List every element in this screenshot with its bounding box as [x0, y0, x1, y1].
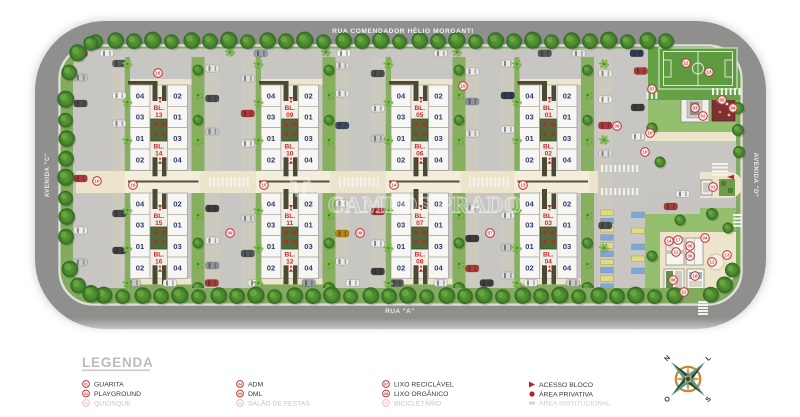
svg-text:06: 06	[416, 151, 424, 158]
svg-text:01: 01	[173, 221, 182, 230]
svg-text:03: 03	[173, 242, 181, 251]
svg-text:04: 04	[267, 199, 276, 208]
svg-text:02: 02	[304, 91, 312, 100]
svg-text:10: 10	[643, 150, 648, 155]
svg-text:04: 04	[238, 382, 242, 386]
svg-text:QUIOSQUE: QUIOSQUE	[94, 400, 131, 407]
svg-text:02: 02	[525, 155, 533, 164]
svg-text:01: 01	[397, 134, 406, 143]
svg-text:05: 05	[720, 98, 725, 103]
svg-text:01: 01	[84, 382, 88, 386]
svg-text:03: 03	[136, 221, 144, 230]
svg-text:03: 03	[136, 113, 144, 122]
svg-text:09: 09	[228, 231, 233, 236]
svg-text:03: 03	[304, 242, 312, 251]
svg-text:SALÃO DE FESTAS: SALÃO DE FESTAS	[248, 398, 310, 407]
svg-text:BL.: BL.	[543, 144, 554, 151]
svg-text:04: 04	[545, 259, 553, 266]
svg-text:03: 03	[84, 401, 88, 405]
svg-text:DML: DML	[248, 391, 263, 398]
svg-text:06: 06	[688, 244, 693, 249]
svg-text:ÁREA PRIVATIVA: ÁREA PRIVATIVA	[539, 390, 593, 399]
svg-text:07: 07	[650, 87, 655, 92]
svg-text:03: 03	[563, 134, 571, 143]
svg-text:15: 15	[155, 220, 163, 227]
svg-text:11: 11	[286, 220, 293, 227]
svg-text:09: 09	[615, 124, 620, 129]
svg-text:02: 02	[136, 263, 144, 272]
svg-text:04: 04	[563, 263, 572, 272]
svg-text:05: 05	[416, 112, 424, 119]
svg-text:03: 03	[173, 134, 181, 143]
svg-text:BL.: BL.	[153, 252, 164, 259]
svg-text:04: 04	[267, 91, 276, 100]
svg-text:BL.: BL.	[284, 252, 295, 259]
svg-text:02: 02	[701, 114, 706, 119]
svg-text:03: 03	[525, 113, 533, 122]
svg-text:02: 02	[397, 263, 405, 272]
svg-text:04: 04	[304, 155, 313, 164]
svg-text:02: 02	[267, 263, 275, 272]
svg-text:RUA "A": RUA "A"	[385, 308, 415, 315]
svg-text:03: 03	[397, 221, 405, 230]
svg-text:02: 02	[173, 199, 181, 208]
svg-text:12: 12	[684, 61, 689, 66]
svg-text:08: 08	[384, 392, 388, 396]
svg-text:04: 04	[434, 263, 443, 272]
svg-text:01: 01	[545, 112, 553, 119]
svg-text:ÁREA INSTITUCIONAL: ÁREA INSTITUCIONAL	[539, 399, 611, 408]
svg-text:01: 01	[397, 242, 406, 251]
svg-text:04: 04	[525, 91, 534, 100]
svg-text:16: 16	[155, 259, 163, 266]
svg-text:15: 15	[461, 84, 466, 89]
svg-text:03: 03	[545, 220, 553, 227]
svg-text:04: 04	[136, 91, 145, 100]
svg-text:08: 08	[358, 231, 363, 236]
svg-text:09: 09	[384, 401, 388, 405]
svg-text:03: 03	[267, 113, 275, 122]
svg-text:03: 03	[434, 134, 442, 143]
svg-text:04: 04	[525, 199, 534, 208]
svg-text:03: 03	[525, 221, 533, 230]
svg-text:03: 03	[267, 221, 275, 230]
svg-text:07: 07	[488, 231, 493, 236]
svg-text:13: 13	[725, 253, 730, 258]
svg-text:04: 04	[731, 106, 736, 111]
svg-text:04: 04	[397, 91, 406, 100]
svg-text:05: 05	[238, 392, 242, 396]
svg-text:13: 13	[707, 70, 712, 75]
svg-text:02: 02	[173, 91, 181, 100]
svg-text:02: 02	[397, 155, 405, 164]
svg-text:10: 10	[648, 131, 653, 136]
svg-text:02: 02	[434, 91, 442, 100]
svg-text:RUA COMENDADOR HÉLIO MORGANTI: RUA COMENDADOR HÉLIO MORGANTI	[332, 26, 474, 35]
svg-text:03: 03	[563, 242, 571, 251]
svg-text:16: 16	[156, 71, 161, 76]
svg-text:04: 04	[304, 263, 313, 272]
svg-text:LIXO RECICLÁVEL: LIXO RECICLÁVEL	[394, 379, 454, 388]
svg-text:01: 01	[304, 113, 313, 122]
svg-text:18: 18	[693, 274, 698, 279]
svg-text:BL.: BL.	[543, 252, 554, 259]
svg-text:AVENIDA "C": AVENIDA "C"	[44, 153, 51, 198]
svg-text:04: 04	[173, 263, 182, 272]
svg-text:04: 04	[173, 155, 182, 164]
svg-text:01: 01	[525, 242, 534, 251]
svg-text:04: 04	[563, 155, 572, 164]
svg-text:14: 14	[392, 183, 397, 188]
svg-text:02: 02	[563, 199, 571, 208]
svg-text:02: 02	[545, 151, 553, 158]
svg-text:09: 09	[286, 112, 294, 119]
svg-text:04: 04	[434, 155, 443, 164]
svg-text:CAMPOS PRADO: CAMPOS PRADO	[328, 193, 523, 219]
svg-text:GUARITA: GUARITA	[94, 381, 124, 388]
svg-text:01: 01	[563, 221, 572, 230]
svg-text:02: 02	[267, 155, 275, 164]
svg-text:BL.: BL.	[284, 144, 295, 151]
svg-text:08: 08	[671, 278, 676, 283]
svg-text:BL.: BL.	[414, 144, 425, 151]
svg-text:01: 01	[525, 134, 534, 143]
svg-text:15: 15	[262, 183, 267, 188]
svg-text:BL.: BL.	[153, 144, 164, 151]
svg-text:02: 02	[84, 392, 88, 396]
svg-text:06: 06	[688, 254, 693, 259]
svg-text:17: 17	[676, 238, 681, 243]
svg-text:07: 07	[416, 220, 424, 227]
svg-text:03: 03	[397, 113, 405, 122]
svg-text:12: 12	[710, 260, 715, 265]
svg-text:01: 01	[173, 113, 182, 122]
svg-text:01: 01	[711, 185, 716, 190]
svg-text:12: 12	[286, 259, 294, 266]
svg-text:13: 13	[521, 183, 526, 188]
svg-text:03: 03	[304, 134, 312, 143]
svg-text:AVENIDA "D": AVENIDA "D"	[752, 153, 759, 198]
svg-text:08: 08	[416, 259, 424, 266]
svg-text:02: 02	[136, 155, 144, 164]
svg-text:16: 16	[131, 183, 136, 188]
svg-text:10: 10	[286, 151, 294, 158]
svg-text:03: 03	[693, 106, 698, 111]
svg-text:PLAYGROUND: PLAYGROUND	[94, 391, 141, 398]
svg-text:01: 01	[267, 134, 276, 143]
svg-text:ADM: ADM	[248, 381, 263, 388]
svg-text:01: 01	[136, 134, 145, 143]
svg-text:01: 01	[304, 221, 313, 230]
svg-text:14: 14	[667, 239, 672, 244]
svg-text:03: 03	[434, 242, 442, 251]
svg-text:01: 01	[563, 113, 572, 122]
svg-text:BICICLETÁRIO: BICICLETÁRIO	[394, 398, 441, 407]
svg-text:07: 07	[384, 382, 388, 386]
svg-text:02: 02	[563, 91, 571, 100]
svg-text:LIXO ORGÂNICO: LIXO ORGÂNICO	[394, 389, 448, 398]
svg-text:01: 01	[136, 242, 145, 251]
svg-text:12: 12	[682, 290, 687, 295]
svg-text:10: 10	[95, 179, 100, 184]
svg-text:13: 13	[155, 112, 163, 119]
svg-text:02: 02	[304, 199, 312, 208]
svg-text:01: 01	[434, 113, 443, 122]
svg-text:ACESSO BLOCO: ACESSO BLOCO	[539, 382, 593, 389]
svg-text:BL.: BL.	[414, 252, 425, 259]
svg-text:06: 06	[238, 401, 242, 405]
svg-text:01: 01	[267, 242, 276, 251]
svg-text:11: 11	[674, 250, 679, 255]
svg-text:01: 01	[434, 221, 443, 230]
svg-text:02: 02	[525, 263, 533, 272]
svg-text:04: 04	[136, 199, 145, 208]
svg-text:LEGENDA: LEGENDA	[82, 355, 154, 370]
svg-text:04: 04	[703, 236, 708, 241]
svg-text:14: 14	[155, 151, 163, 158]
